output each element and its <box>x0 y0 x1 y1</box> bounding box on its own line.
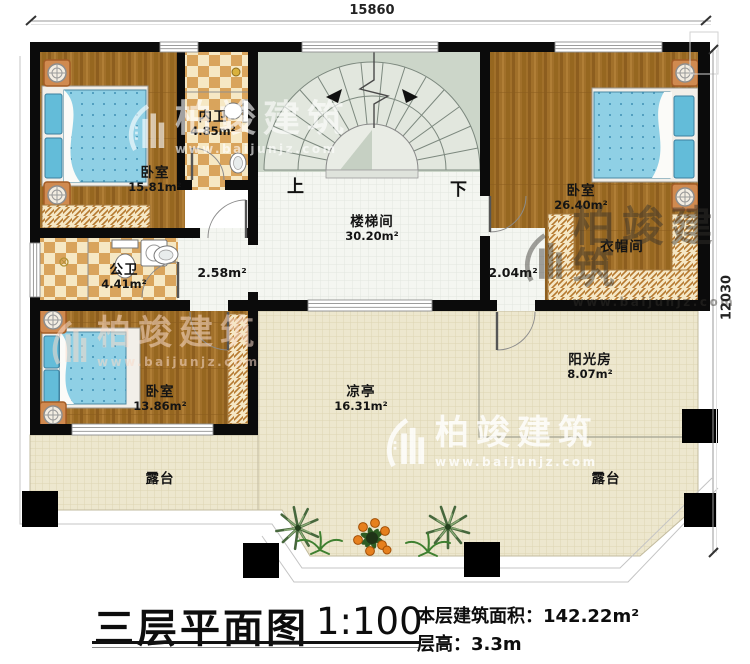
title-underline <box>92 641 420 644</box>
floor-plan-drawing <box>0 0 750 664</box>
floor-plan-page: 15860 12030 卧室 15.81m² 内卫 4.85m² 公卫 4.41… <box>0 0 750 664</box>
title-underline <box>92 647 420 648</box>
toilet-icon <box>224 103 242 119</box>
dimension-right: 12030 <box>720 267 735 329</box>
spiral-staircase <box>258 52 480 178</box>
floor-height-text: 层高：3.3m <box>417 630 522 656</box>
bed-icon <box>42 328 140 408</box>
toilet-icon <box>112 240 138 248</box>
bed-icon <box>592 88 698 182</box>
plan-title: 三层平面图 <box>94 596 309 654</box>
floor-area-text: 本层建筑面积：142.22m² <box>417 602 639 628</box>
toilet-icon <box>115 254 135 278</box>
bed-icon <box>42 86 148 186</box>
plan-scale: 1:100 <box>316 600 423 643</box>
dimension-top: 15860 <box>340 3 404 18</box>
